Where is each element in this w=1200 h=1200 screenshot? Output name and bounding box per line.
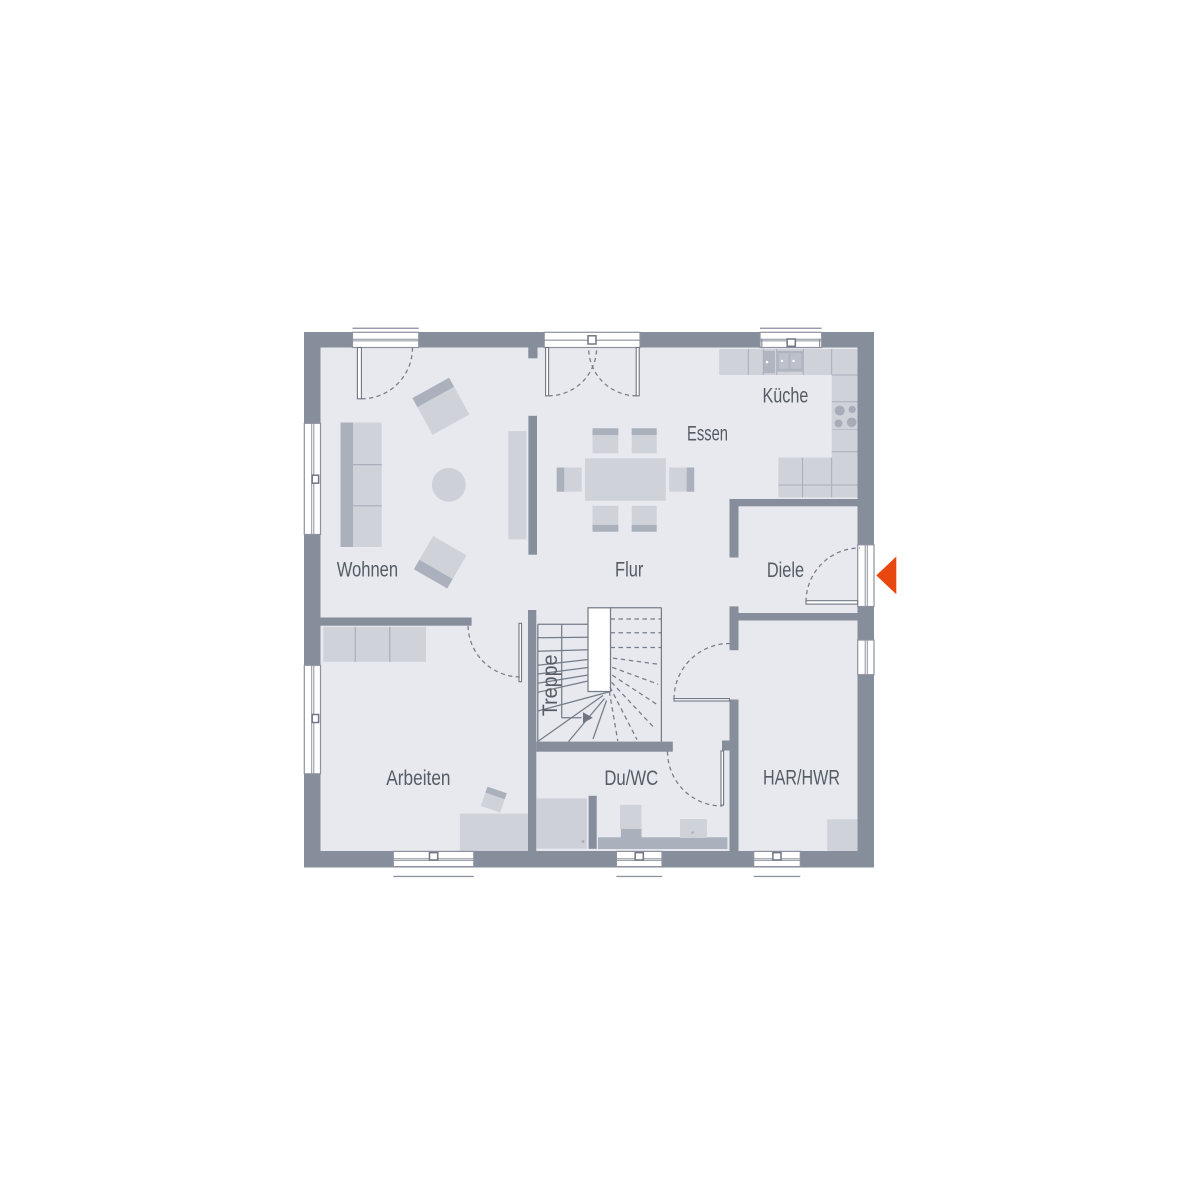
svg-text:Essen: Essen [687,423,728,446]
svg-text:Diele: Diele [767,559,804,582]
svg-text:Flur: Flur [615,559,643,582]
svg-text:Treppe: Treppe [539,655,562,717]
svg-text:Wohnen: Wohnen [337,559,398,582]
svg-text:Arbeiten: Arbeiten [386,767,450,790]
svg-text:HAR/HWR: HAR/HWR [763,767,840,790]
svg-text:Küche: Küche [763,385,809,408]
svg-text:Du/WC: Du/WC [604,767,658,790]
